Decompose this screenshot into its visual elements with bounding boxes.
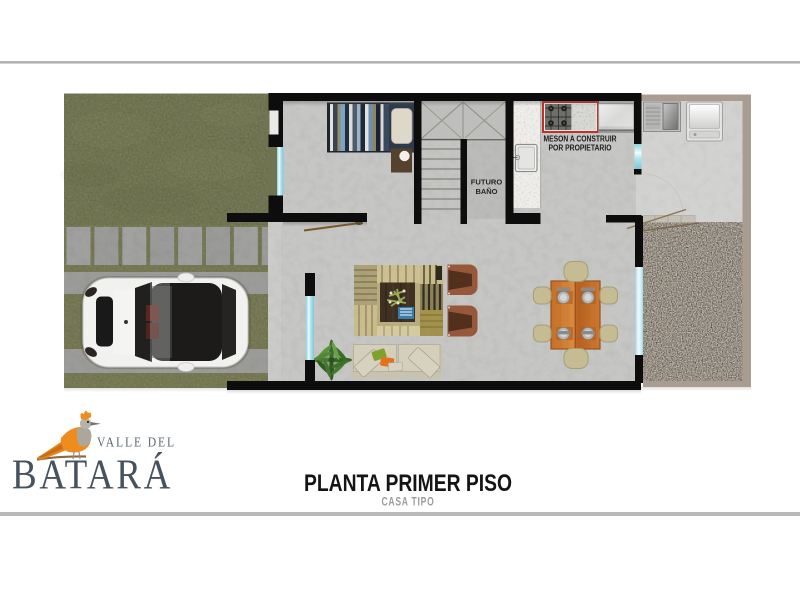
svg-text:POR PROPIETARIO: POR PROPIETARIO — [549, 144, 612, 153]
svg-text:CASA TIPO: CASA TIPO — [382, 497, 435, 509]
svg-text:MESON A CONSTRUIR: MESON A CONSTRUIR — [544, 135, 617, 144]
svg-text:BAÑO: BAÑO — [476, 187, 498, 196]
svg-text:FUTURO: FUTURO — [471, 178, 503, 187]
svg-text:BATARÁ: BATARÁ — [12, 452, 173, 499]
svg-text:PLANTA PRIMER PISO: PLANTA PRIMER PISO — [304, 470, 512, 497]
svg-text:VALLE DEL: VALLE DEL — [97, 435, 176, 450]
